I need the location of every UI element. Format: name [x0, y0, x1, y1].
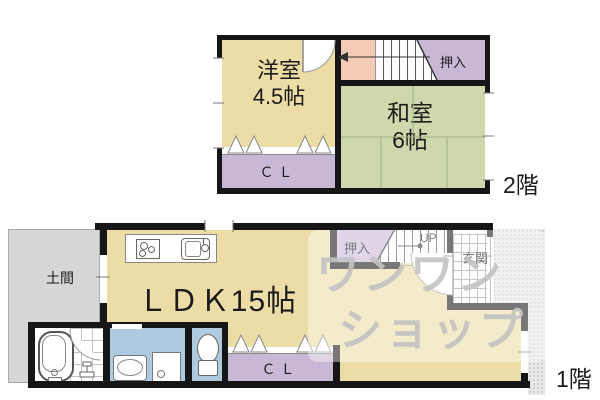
watermark-line2: ショップ: [338, 294, 526, 358]
sink-faucet: [201, 244, 209, 252]
toilet-icon: [197, 334, 219, 363]
bathtub-drain: [51, 369, 58, 376]
watermark-line1: ワンワン: [316, 238, 504, 302]
window: [205, 223, 233, 230]
japanese-room-label: 和室 6帖: [355, 100, 465, 154]
wall: [341, 80, 485, 86]
bathtub-inner: [42, 335, 66, 372]
ldk-label: ＬＤＫ15帖: [125, 276, 310, 320]
washing-machine-door: [157, 370, 165, 378]
stove-burner: [148, 246, 155, 253]
stove-burner: [140, 242, 148, 250]
divider: [375, 40, 376, 80]
window: [100, 255, 107, 303]
closet-1f-label: ＣＬ: [228, 359, 333, 379]
washroom-door: [112, 324, 142, 329]
washbasin-bowl: [117, 359, 143, 376]
toilet-tank: [198, 360, 218, 376]
washing-machine-icon: [152, 352, 181, 382]
first-floor-label: 1階: [556, 360, 592, 394]
landing-2f: [341, 40, 375, 80]
western-room-label: 洋室 4.5帖: [228, 58, 330, 110]
closet-opening: [222, 147, 335, 155]
sink-faucet-stem: [203, 239, 204, 245]
floor-plan: 洋室 4.5帖 和室 6帖 押入 ＣＬ 2階: [0, 0, 600, 400]
stove-burner: [139, 250, 146, 257]
sink-basin: [185, 241, 201, 257]
oshiire-2f-label: 押入: [440, 52, 466, 71]
japanese-room-name: 和室: [355, 100, 465, 127]
doma-label: 土間: [30, 268, 90, 288]
wall: [95, 223, 493, 230]
wall: [335, 40, 341, 188]
window: [217, 58, 222, 148]
japanese-room-size: 6帖: [355, 127, 465, 154]
wall: [217, 35, 490, 40]
second-floor-label: 2階: [503, 166, 539, 200]
shower-area: [70, 328, 103, 381]
wall: [217, 188, 490, 194]
western-room-size: 4.5帖: [228, 84, 330, 110]
closet-2f-label: ＣＬ: [222, 162, 335, 182]
wall: [28, 381, 530, 388]
window: [485, 93, 490, 180]
watermark: ワンワン ショップ: [308, 230, 546, 362]
western-room-name: 洋室: [228, 58, 330, 84]
second-floor-plan: 洋室 4.5帖 和室 6帖 押入 ＣＬ 2階: [0, 0, 600, 200]
